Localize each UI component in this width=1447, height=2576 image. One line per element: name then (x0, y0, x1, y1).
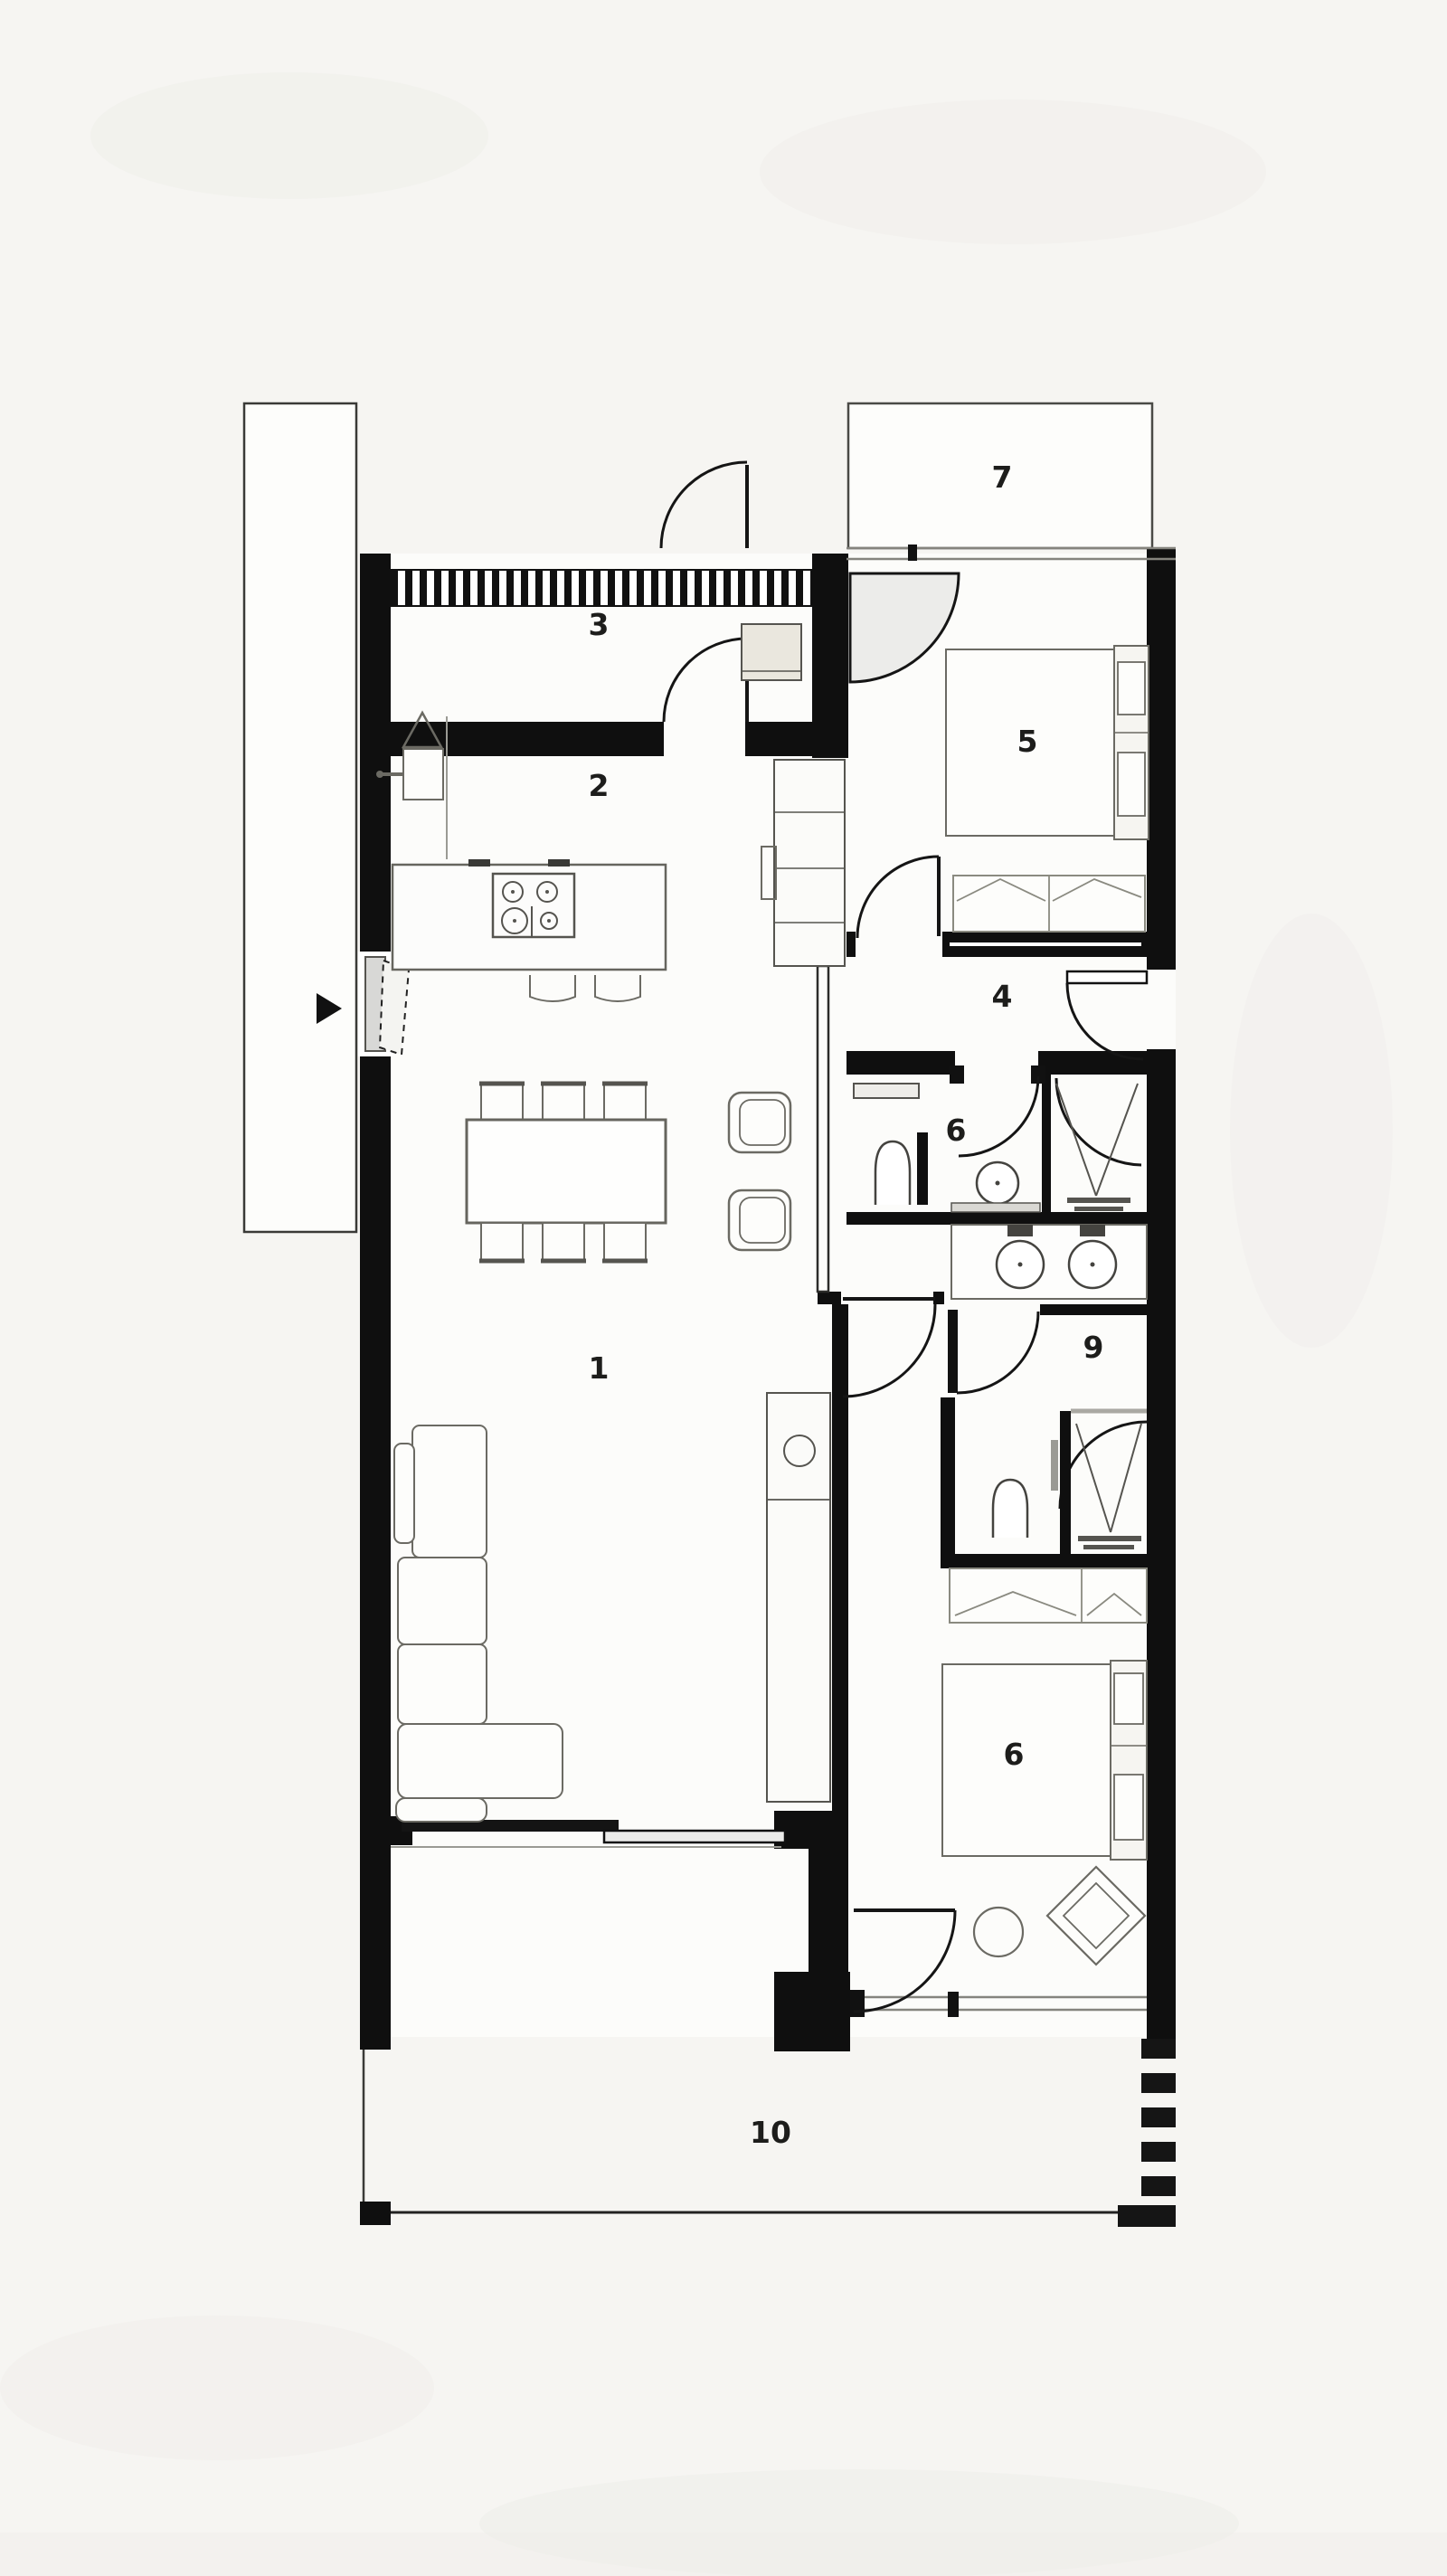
window-post (948, 1992, 959, 2017)
toilet-icon (993, 1480, 1027, 1538)
dining-chair (479, 1084, 525, 1122)
room-label-bathroom: 9 (1083, 1330, 1104, 1365)
right-exterior-wall-lower (1147, 1049, 1176, 2050)
kitchen-desk (403, 749, 443, 800)
bath9-bottom-wall (941, 1554, 1147, 1568)
tap (1080, 1225, 1105, 1236)
pillow (1118, 753, 1145, 816)
dresser-bench (953, 876, 1145, 932)
entry-pillar (812, 554, 848, 758)
room-label-bedroom1: 5 (1017, 724, 1038, 759)
terrace-corner-post (360, 2202, 391, 2225)
room-label-hall: 3 (589, 607, 610, 642)
dining-table (467, 1120, 666, 1223)
sideboard-counter (767, 1393, 830, 1802)
room-label-terrace-top: 7 (992, 459, 1013, 495)
sliding-panel-2 (604, 1831, 785, 1842)
bath-top-wall (1040, 1304, 1147, 1315)
wc-shower-divider (1042, 1075, 1051, 1217)
dining-chair (602, 1223, 648, 1261)
hall-kitchen-wall-right (745, 722, 814, 756)
double-bed (946, 646, 1149, 839)
dining-chair (541, 1084, 586, 1122)
desk-knob (376, 771, 383, 778)
shower-handle (1051, 1440, 1058, 1491)
side-annex-outline (244, 403, 356, 1232)
pillow (1114, 1775, 1143, 1840)
room-label-bedroom2: 6 (1004, 1737, 1025, 1772)
left-exterior-wall (360, 554, 391, 2050)
tap (1007, 1225, 1033, 1236)
pillow (1118, 662, 1145, 715)
right-exterior-wall-upper (1147, 548, 1176, 970)
room-label-terrace-low: 10 (750, 2115, 791, 2150)
room-label-kitchen: 2 (589, 768, 610, 803)
bedroom1-furniture (946, 646, 1149, 932)
floor-plan-drawing: 1 2 3 4 5 6 7 6 9 10 (0, 0, 1447, 2576)
wc-vanity-wall (846, 1212, 1147, 1225)
room-label-hallway: 4 (992, 979, 1013, 1014)
dining-chair (541, 1223, 586, 1261)
hall-wc-wall-right (1038, 1051, 1147, 1075)
basin-drain (996, 1181, 1000, 1186)
window-post (908, 545, 917, 561)
corner-post-c (774, 1972, 850, 2051)
entrance-hall-furniture (742, 624, 801, 680)
dining-chair (479, 1223, 525, 1261)
bath9-left-wall (941, 1397, 955, 1556)
door-hinge-block (950, 1065, 964, 1084)
room-label-wc: 6 (946, 1113, 967, 1148)
vanity-counter (951, 1203, 1040, 1212)
window-post (850, 1990, 865, 2017)
wardrobe (950, 1568, 1147, 1623)
island-fixture (548, 859, 570, 867)
room-label-living: 1 (589, 1350, 610, 1386)
basin-drain (1091, 1263, 1095, 1267)
pillow (1114, 1673, 1143, 1724)
toilet-icon (875, 1141, 910, 1205)
radiator (854, 1084, 919, 1098)
wc-stub-wall (917, 1132, 928, 1205)
privacy-screen-dashes (1118, 2039, 1176, 2227)
lobby-wall-a (818, 1292, 841, 1304)
shower-partition (1060, 1411, 1071, 1554)
basin-drain (1018, 1263, 1023, 1267)
exterior-door-leaf (1067, 971, 1147, 983)
door-swing-icon (661, 462, 747, 548)
armchair (729, 1190, 790, 1250)
bedroom1-hall-wall-a (846, 932, 856, 957)
tall-cabinet-run (774, 760, 845, 966)
armchair (729, 1093, 790, 1152)
dining-chair (602, 1084, 648, 1122)
island-fixture (468, 859, 490, 867)
top-hatched-wall (391, 570, 814, 606)
hall-wc-wall-left (846, 1051, 955, 1075)
kitchen-island (392, 865, 666, 970)
bath9-door-leaf (948, 1310, 958, 1393)
double-vanity-counter (951, 1225, 1147, 1299)
double-bed (942, 1661, 1147, 1860)
